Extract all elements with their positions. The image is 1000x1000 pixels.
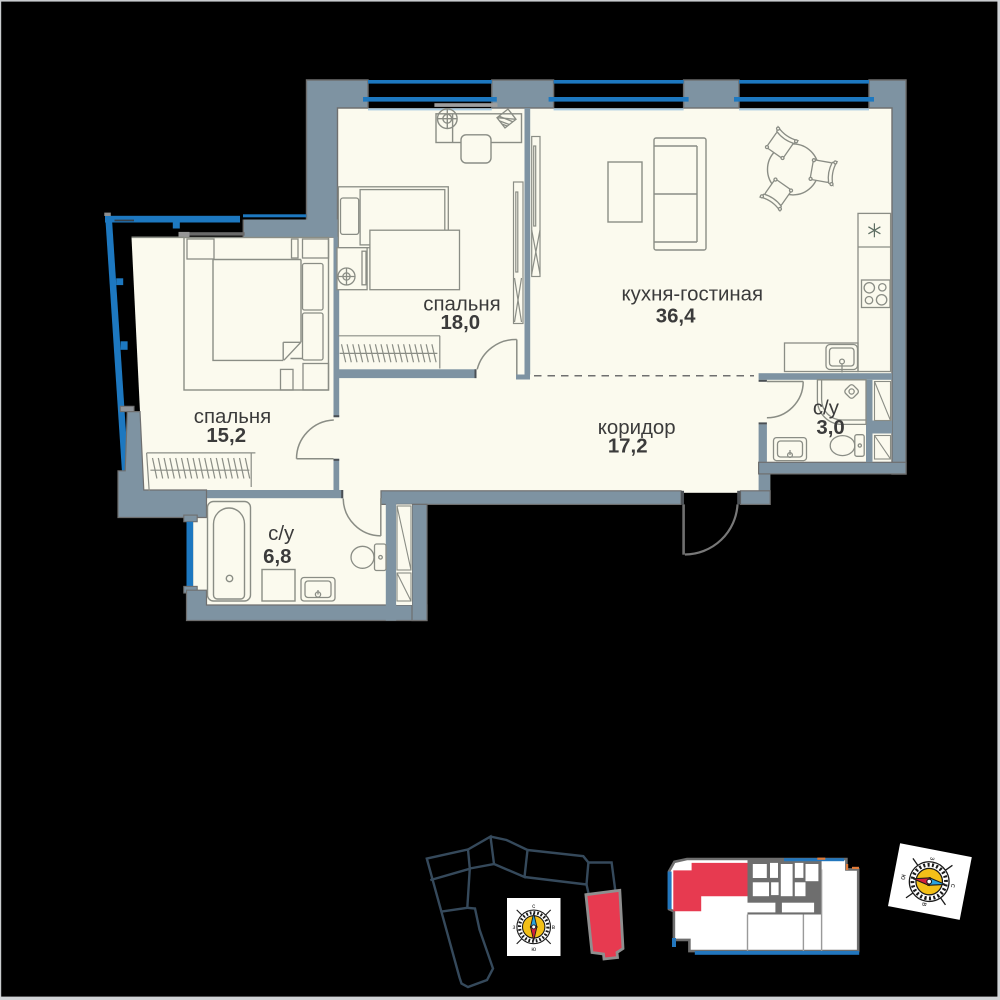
svg-text:ю: ю [531,946,536,953]
svg-text:6,8: 6,8 [263,546,291,568]
svg-text:17,2: 17,2 [608,435,648,457]
svg-text:кухня-гостиная: кухня-гостиная [622,283,764,305]
svg-text:з: з [512,924,515,931]
svg-text:15,2: 15,2 [206,425,246,447]
svg-text:36,4: 36,4 [656,306,696,328]
svg-text:с: с [532,903,535,910]
svg-text:18,0: 18,0 [440,312,480,334]
svg-text:3,0: 3,0 [816,417,844,439]
svg-text:с/у: с/у [268,523,295,545]
